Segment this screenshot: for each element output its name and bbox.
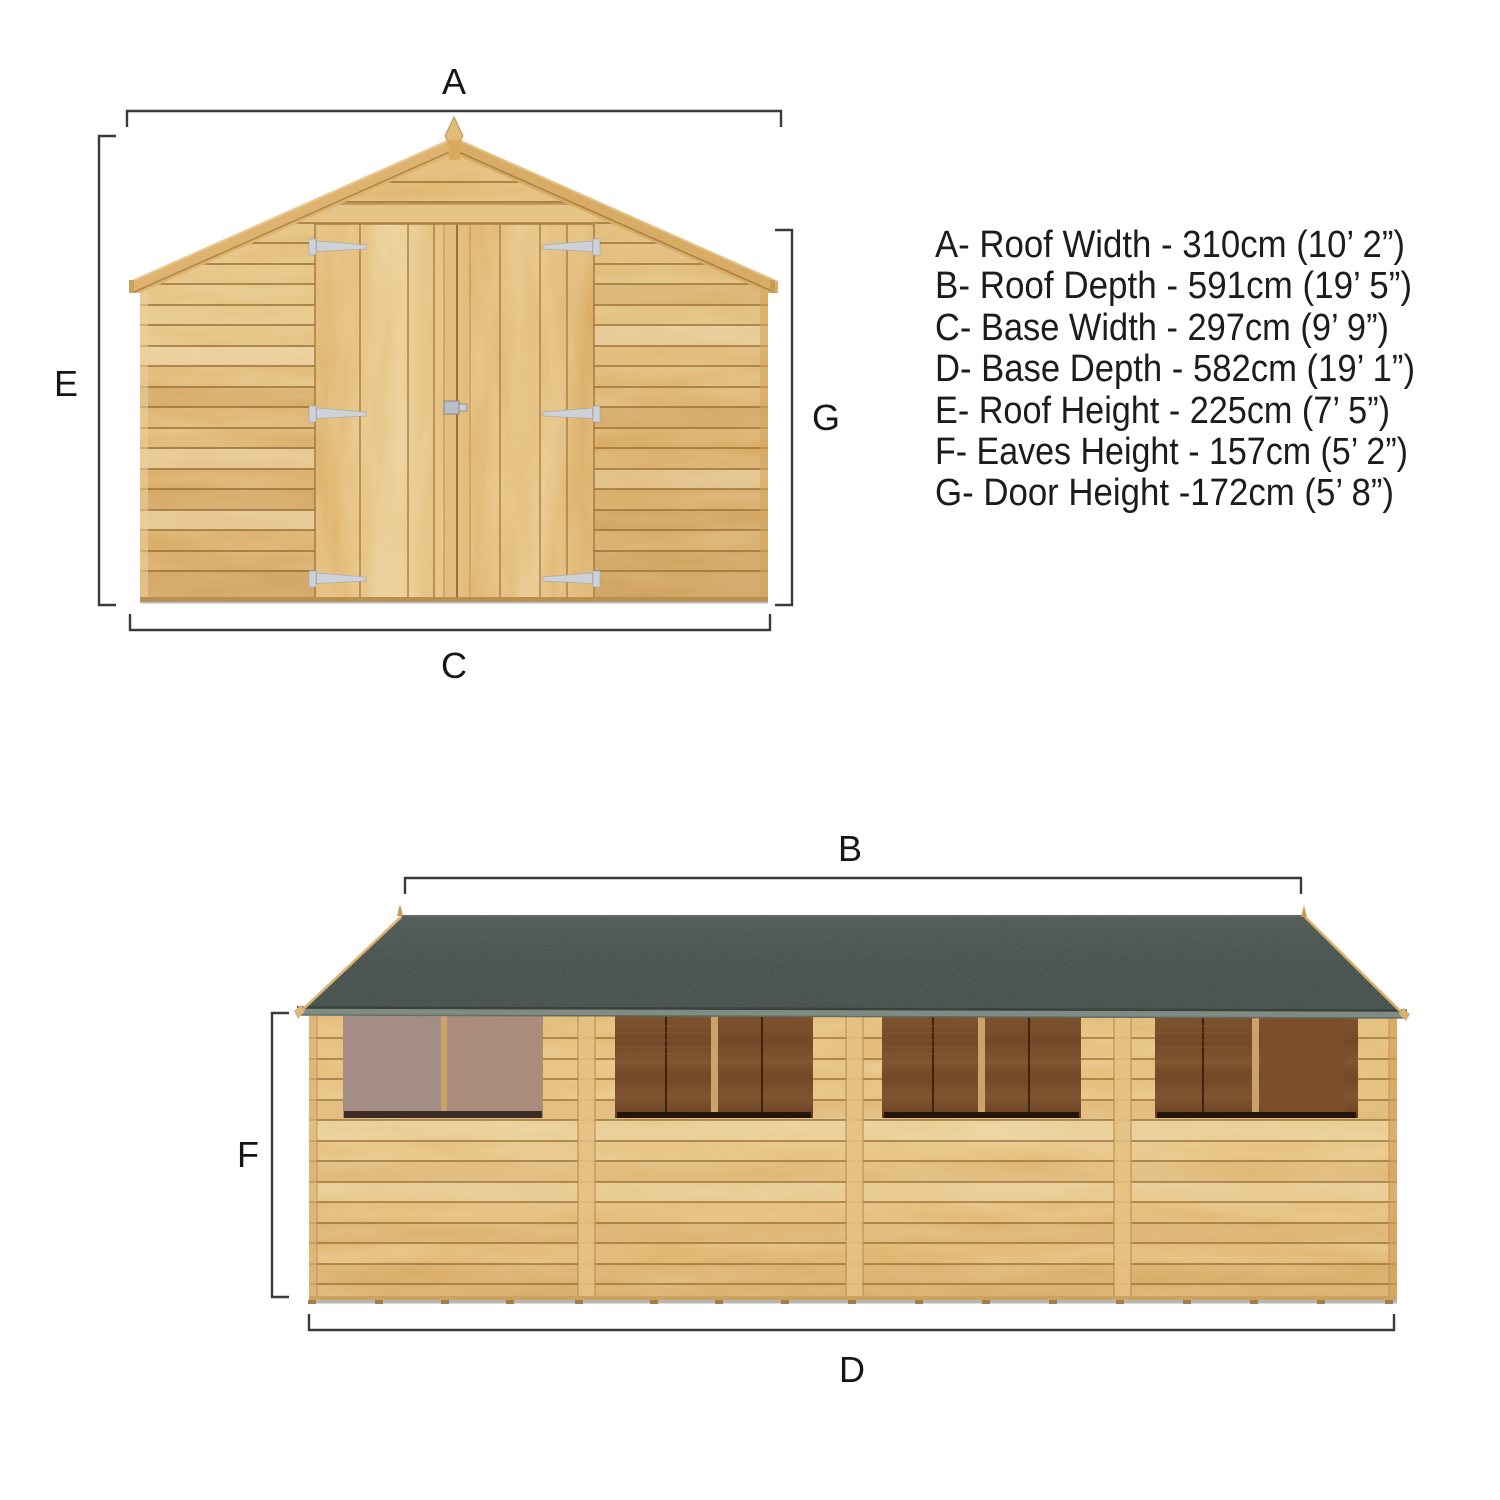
svg-text:C- Base Width - 297cm (9’ 9”): C- Base Width - 297cm (9’ 9”)	[935, 307, 1389, 349]
svg-text:E: E	[54, 363, 78, 404]
svg-text:D: D	[839, 1349, 865, 1390]
svg-text:D- Base Depth - 582cm (19’ 1”): D- Base Depth - 582cm (19’ 1”)	[935, 348, 1415, 390]
svg-text:B: B	[838, 828, 862, 869]
svg-text:F- Eaves Height - 157cm (5’ 2”: F- Eaves Height - 157cm (5’ 2”)	[935, 431, 1408, 473]
svg-text:C: C	[441, 645, 467, 686]
svg-text:B- Roof Depth - 591cm (19’ 5”): B- Roof Depth - 591cm (19’ 5”)	[935, 265, 1412, 307]
svg-text:A- Roof Width - 310cm (10’ 2”): A- Roof Width - 310cm (10’ 2”)	[935, 224, 1405, 266]
svg-text:G- Door Height -172cm (5’ 8”): G- Door Height -172cm (5’ 8”)	[935, 472, 1394, 514]
svg-text:E- Roof Height - 225cm (7’ 5”): E- Roof Height - 225cm (7’ 5”)	[935, 390, 1390, 432]
svg-text:F: F	[237, 1134, 259, 1175]
svg-text:A: A	[442, 61, 466, 102]
svg-text:G: G	[812, 397, 840, 438]
